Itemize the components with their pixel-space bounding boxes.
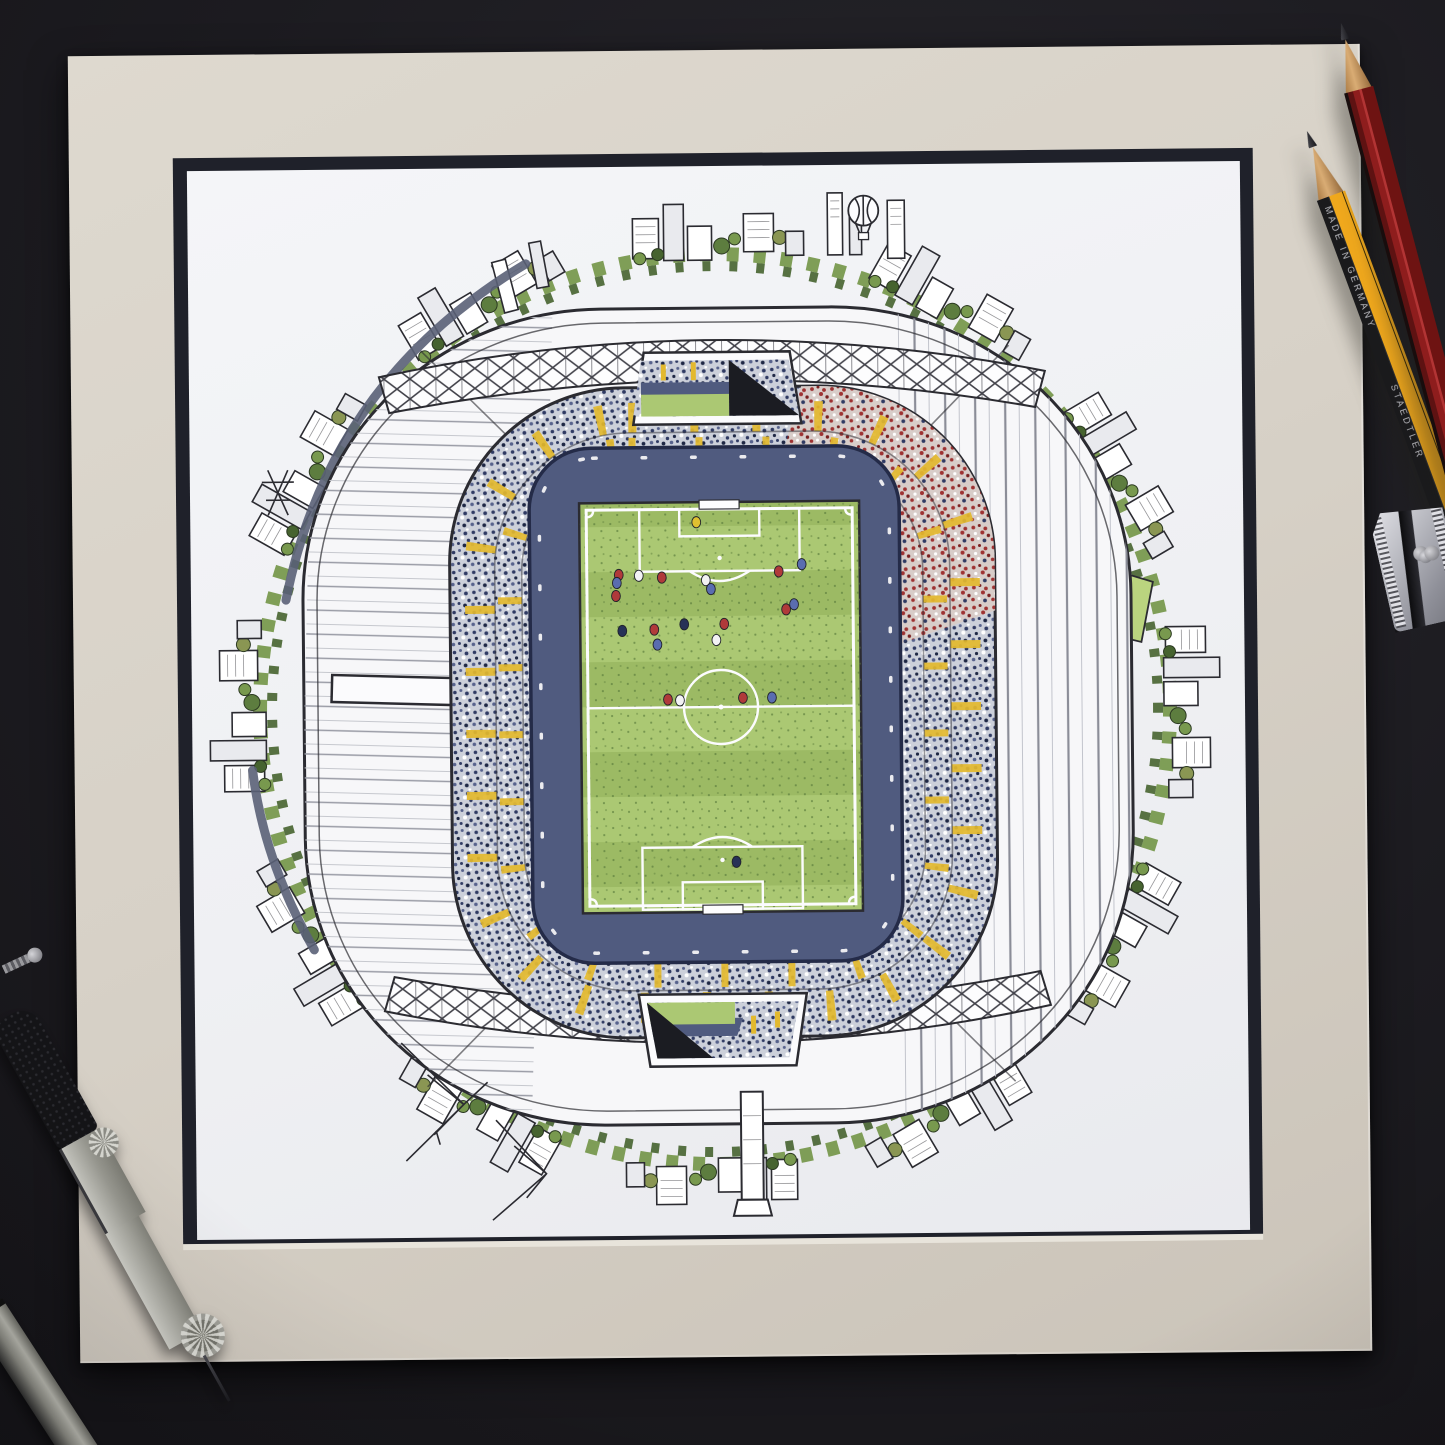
player [692,517,701,528]
player [706,583,715,594]
mat-window-shadow: .bld{fill:#ffffff;stroke:var(--ink);stro… [173,148,1263,1244]
screen-bottom [639,993,810,1067]
player [618,625,627,636]
mat-window-bevel: .bld{fill:#ffffff;stroke:var(--ink);stro… [173,148,1263,1250]
pencil-tip [1337,22,1350,41]
player [767,692,776,703]
pencil-brand-text: STAEDTLER [1388,383,1427,462]
player [790,599,799,610]
player [732,856,741,867]
goal-top [699,500,739,509]
goal-bottom [703,905,743,914]
stadium-globe-illustration: .bld{fill:#ffffff;stroke:var(--ink);stro… [187,161,1250,1240]
player [712,634,721,645]
print-paper: .bld{fill:#ffffff;stroke:var(--ink);stro… [187,161,1250,1240]
compass-needle [203,1355,231,1402]
photo-scene: .bld{fill:#ffffff;stroke:var(--ink);stro… [0,0,1445,1445]
mat-board: .bld{fill:#ffffff;stroke:var(--ink);stro… [68,44,1372,1363]
pencil-sharpener [1368,499,1445,633]
player [612,590,621,601]
player [657,572,666,583]
player [720,618,729,629]
pencil-tip [1303,129,1317,148]
player [650,624,659,635]
pitch [579,499,863,916]
player [676,695,685,706]
player [774,566,783,577]
player [653,639,662,650]
player [634,570,643,581]
loose-screw [2,951,37,974]
player [797,559,806,570]
screen-top [633,351,804,425]
player [738,692,747,703]
player [680,619,689,630]
player [612,577,621,588]
player [664,694,673,705]
player [782,604,791,615]
sharpener-screw [1418,549,1434,565]
